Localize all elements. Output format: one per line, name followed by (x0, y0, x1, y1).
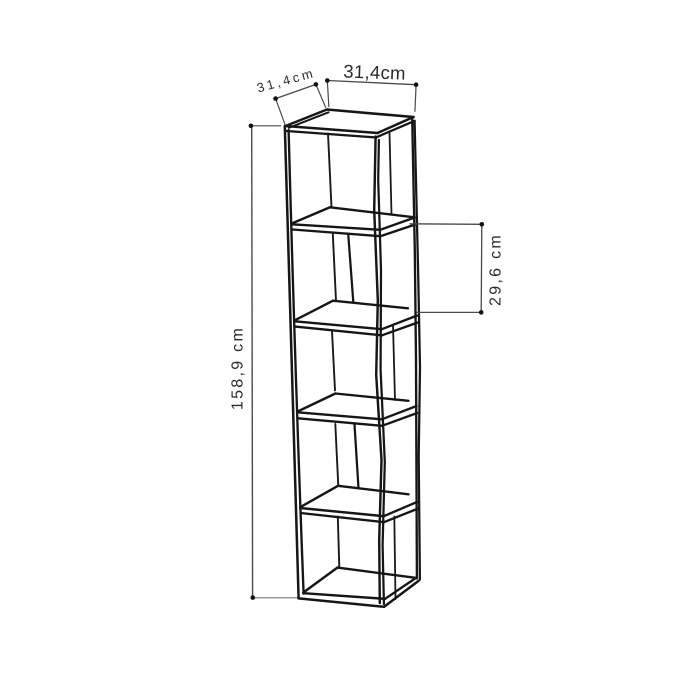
svg-text:29,6 cm: 29,6 cm (488, 233, 505, 306)
svg-text:158,9 cm: 158,9 cm (230, 326, 247, 410)
svg-text:31,4cm: 31,4cm (343, 61, 406, 84)
